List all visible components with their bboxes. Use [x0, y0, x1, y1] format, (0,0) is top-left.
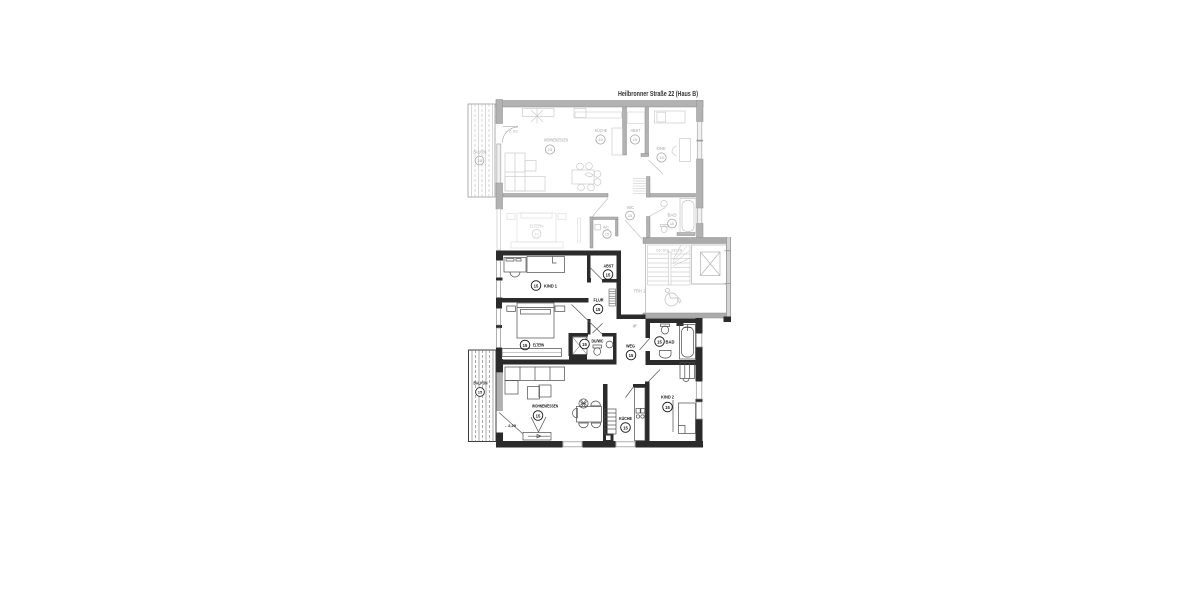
svg-text:WC: WC — [627, 205, 634, 210]
svg-text:ABST: ABST — [604, 264, 614, 269]
svg-text:15: 15 — [477, 158, 482, 163]
svg-text:BAD: BAD — [666, 340, 675, 345]
svg-text:FLUR: FLUR — [594, 298, 605, 303]
svg-text:15: 15 — [478, 390, 483, 395]
svg-text:15: 15 — [523, 343, 528, 348]
svg-text:15: 15 — [605, 233, 609, 237]
svg-text:15: 15 — [582, 342, 587, 347]
svg-text:15: 15 — [534, 283, 539, 288]
svg-text:15: 15 — [598, 137, 603, 142]
svg-text:15: 15 — [623, 425, 628, 430]
svg-text:ELTERN: ELTERN — [533, 343, 544, 348]
svg-text:←2,20: ←2,20 — [504, 423, 517, 428]
svg-text:BALKON: BALKON — [474, 381, 488, 386]
svg-text:Heilbronner Straße 22 (Haus B): Heilbronner Straße 22 (Haus B) — [618, 89, 698, 98]
svg-text:KÜCHE: KÜCHE — [619, 416, 632, 421]
svg-text:WOHNEN/ESSEN: WOHNEN/ESSEN — [532, 404, 558, 409]
svg-text:BAD: BAD — [668, 213, 677, 218]
svg-text:KIND 2: KIND 2 — [661, 395, 674, 400]
svg-text:KIND: KIND — [657, 146, 666, 151]
svg-text:KIND 1: KIND 1 — [544, 284, 557, 289]
svg-text:DU/WC: DU/WC — [592, 339, 605, 344]
svg-text:15: 15 — [659, 155, 664, 160]
svg-text:TRH 2: TRH 2 — [634, 289, 647, 294]
svg-text:16 Stg 18/26: 16 Stg 18/26 — [656, 249, 682, 253]
svg-text:ELTERN: ELTERN — [530, 224, 544, 229]
svg-text:BALKON: BALKON — [474, 150, 487, 155]
svg-text:KÜCHE: KÜCHE — [595, 128, 607, 133]
svg-text:15: 15 — [534, 233, 538, 237]
svg-text:15: 15 — [633, 137, 638, 142]
svg-text:15: 15 — [596, 307, 601, 312]
svg-text:15: 15 — [629, 353, 634, 358]
svg-text:15: 15 — [665, 405, 670, 410]
svg-text:←2,20: ←2,20 — [505, 129, 519, 134]
svg-text:WC: WC — [603, 226, 609, 230]
svg-text:15: 15 — [657, 339, 662, 344]
svg-text:15: 15 — [536, 413, 541, 418]
svg-text:15: 15 — [670, 222, 674, 226]
svg-text:WEG: WEG — [626, 344, 635, 349]
svg-text:15: 15 — [606, 272, 611, 277]
svg-text:WOHNEN/ESSEN: WOHNEN/ESSEN — [544, 138, 568, 143]
svg-text:15: 15 — [628, 214, 632, 218]
svg-text:15: 15 — [548, 147, 553, 152]
svg-text:ABST: ABST — [631, 128, 641, 133]
